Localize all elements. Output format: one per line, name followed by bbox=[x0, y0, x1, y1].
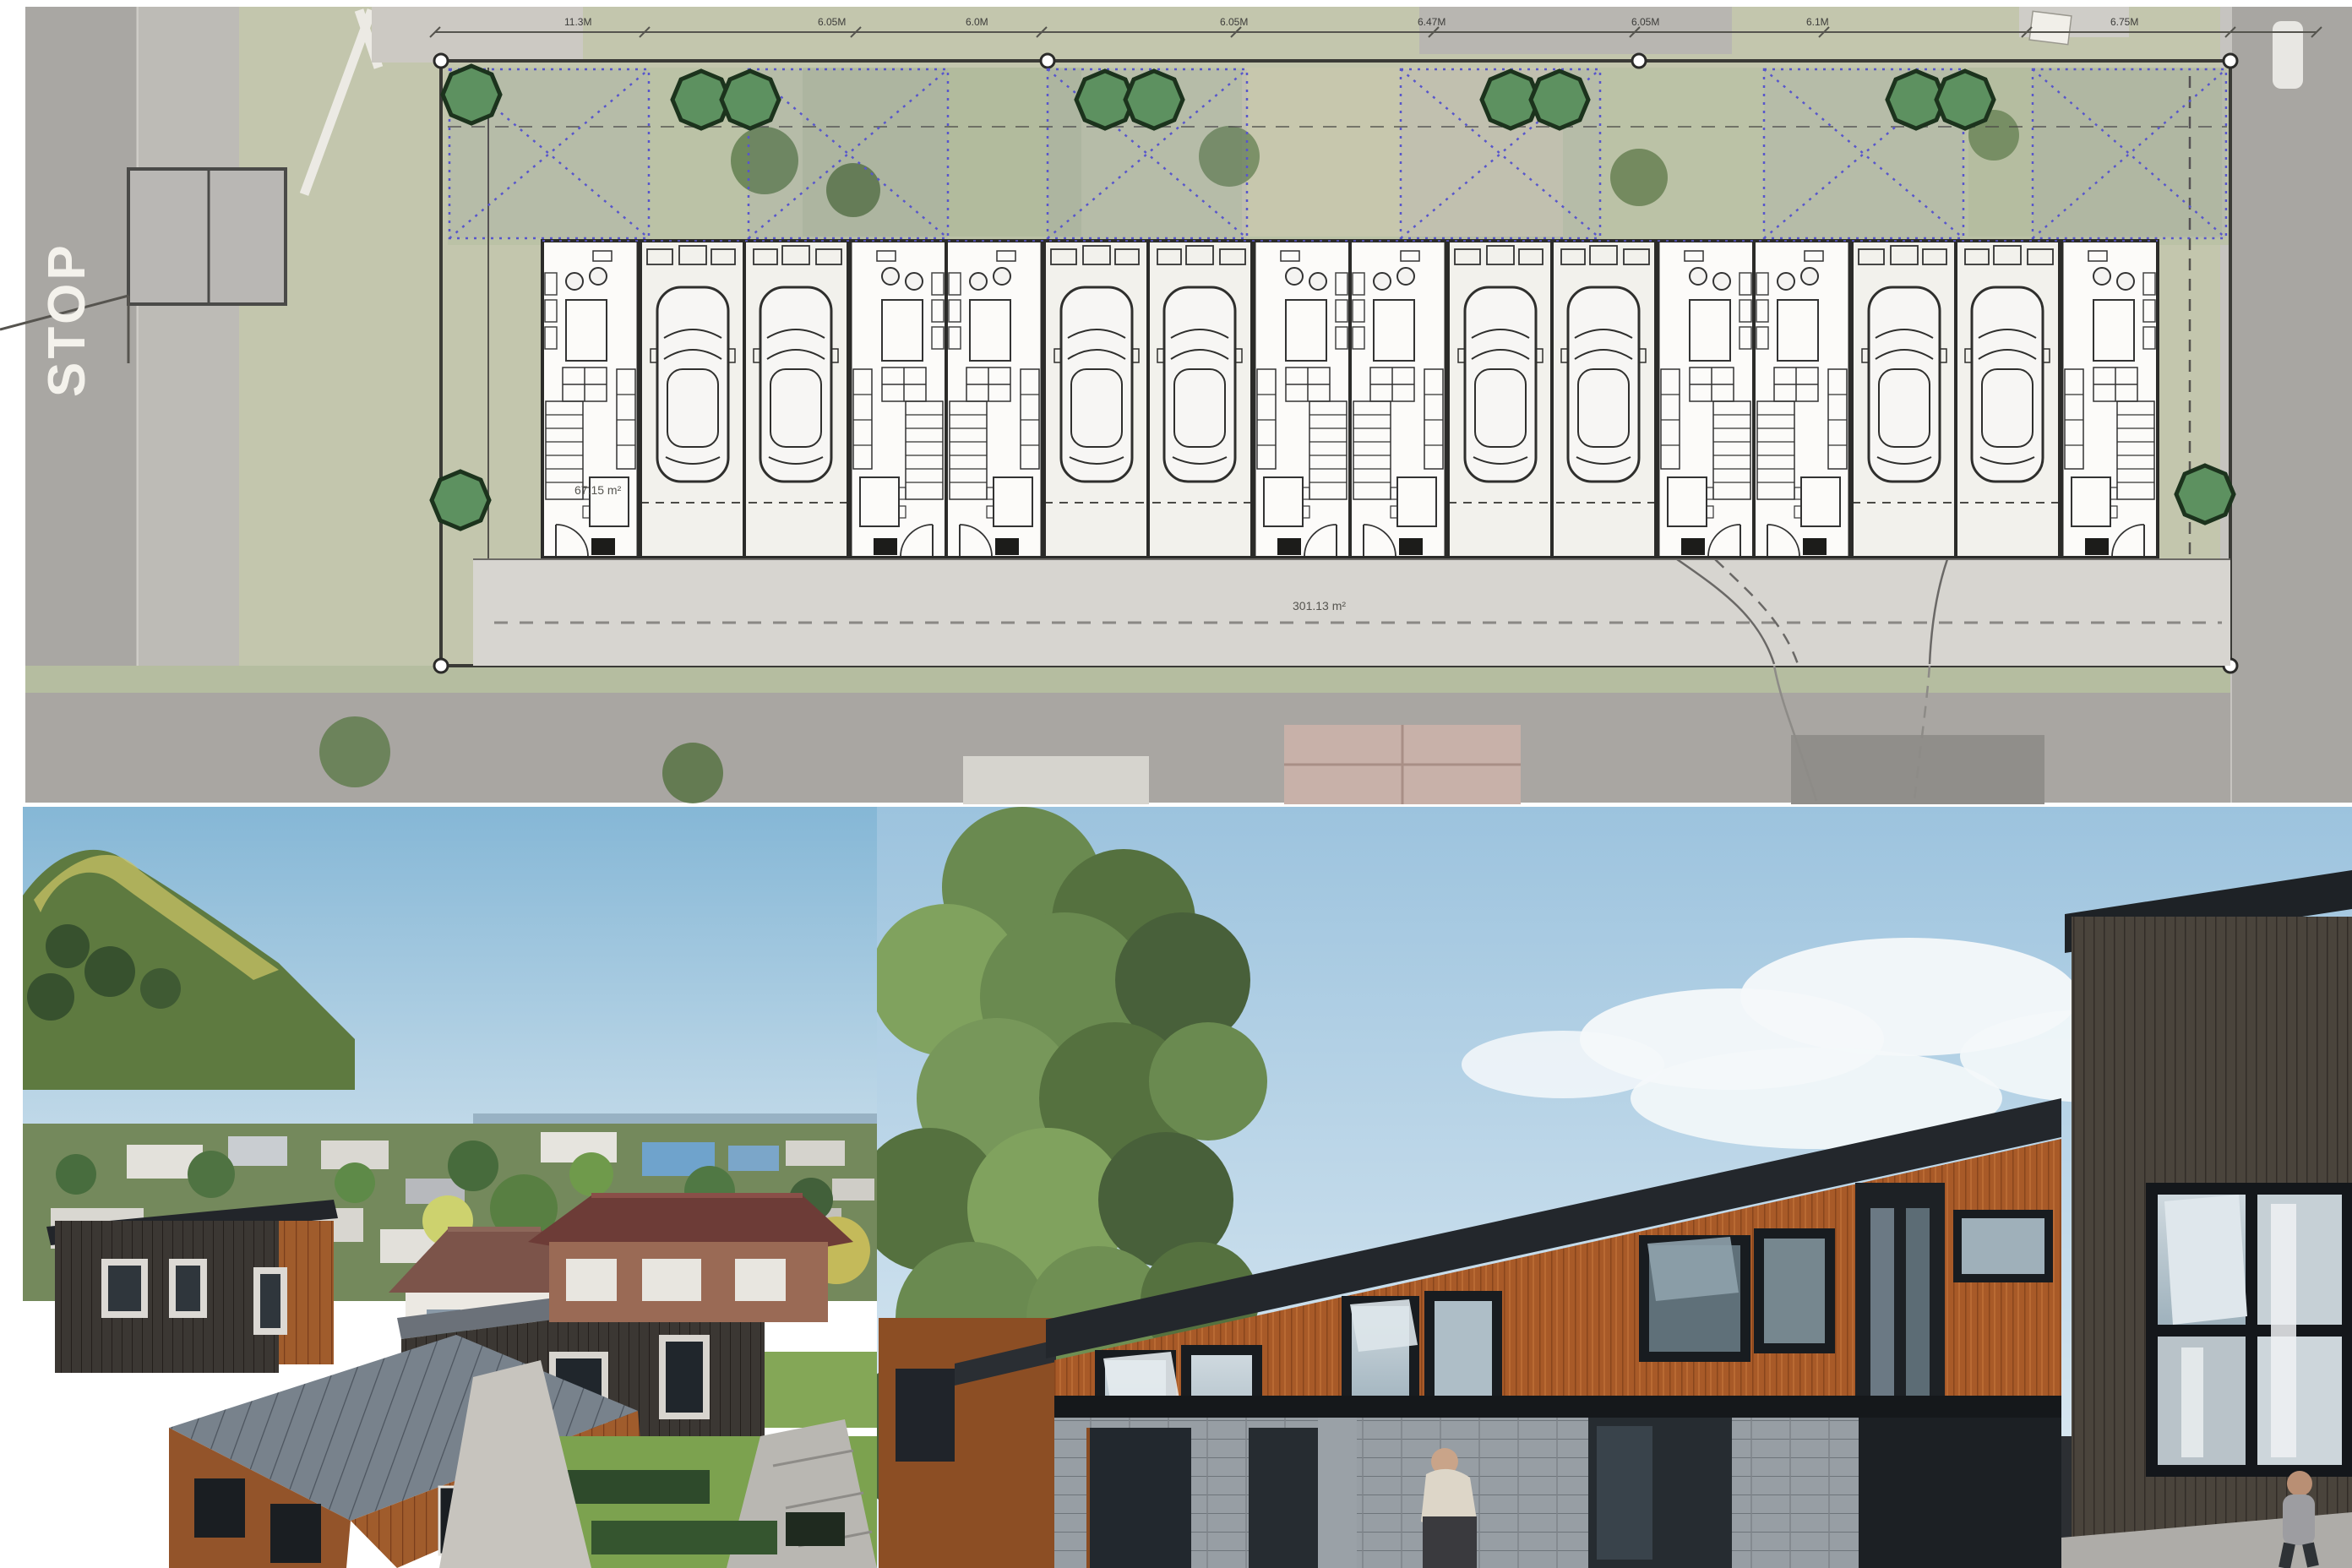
boundary-node bbox=[1041, 54, 1054, 68]
townhouse-module bbox=[1754, 241, 2158, 578]
open-window-pane bbox=[2164, 1195, 2247, 1325]
site-plan: STOP 11.3M 6.05M 6.0 bbox=[0, 0, 2352, 807]
svg-text:6.1M: 6.1M bbox=[1806, 16, 1829, 28]
tree-icon bbox=[1531, 71, 1588, 128]
canopy-soffit bbox=[1054, 1396, 2061, 1418]
tree-icon bbox=[1125, 71, 1183, 128]
townhouse-module bbox=[542, 241, 946, 578]
townhouse-modules bbox=[542, 241, 2158, 578]
tree-icon bbox=[1936, 71, 1994, 128]
townhouse-module bbox=[946, 241, 1350, 578]
curtain bbox=[2271, 1204, 2296, 1457]
unit-area-label: 67.15 m² bbox=[574, 483, 622, 497]
svg-text:6.05M: 6.05M bbox=[1631, 16, 1659, 28]
tree-icon bbox=[432, 471, 489, 529]
svg-text:6.47M: 6.47M bbox=[1418, 16, 1445, 28]
svg-text:6.0M: 6.0M bbox=[966, 16, 988, 28]
small-sign-label bbox=[2029, 11, 2072, 44]
photo-street-render bbox=[877, 807, 2352, 1568]
tree-icon bbox=[2176, 465, 2234, 523]
svg-text:6.05M: 6.05M bbox=[818, 16, 846, 28]
photo-aerial-development bbox=[0, 807, 877, 1568]
tree-icon bbox=[443, 66, 500, 123]
svg-text:6.05M: 6.05M bbox=[1220, 16, 1248, 28]
right-road bbox=[2230, 7, 2352, 803]
dark-townhouse bbox=[2056, 870, 2352, 1568]
composite-architectural-sheet: STOP 11.3M 6.05M 6.0 bbox=[0, 0, 2352, 1568]
townhouse-module bbox=[1350, 241, 1754, 578]
tree-icon bbox=[721, 71, 779, 128]
boundary-node bbox=[1632, 54, 1646, 68]
stop-road-marking: STOP bbox=[38, 242, 96, 397]
ground-floor bbox=[1054, 1418, 2061, 1568]
driveway-area-label: 301.13 m² bbox=[1293, 599, 1346, 612]
svg-text:6.75M: 6.75M bbox=[2110, 16, 2138, 28]
boundary-node bbox=[2224, 54, 2237, 68]
svg-text:11.3M: 11.3M bbox=[564, 16, 591, 28]
boundary-node bbox=[434, 54, 448, 68]
boundary-node bbox=[434, 659, 448, 672]
